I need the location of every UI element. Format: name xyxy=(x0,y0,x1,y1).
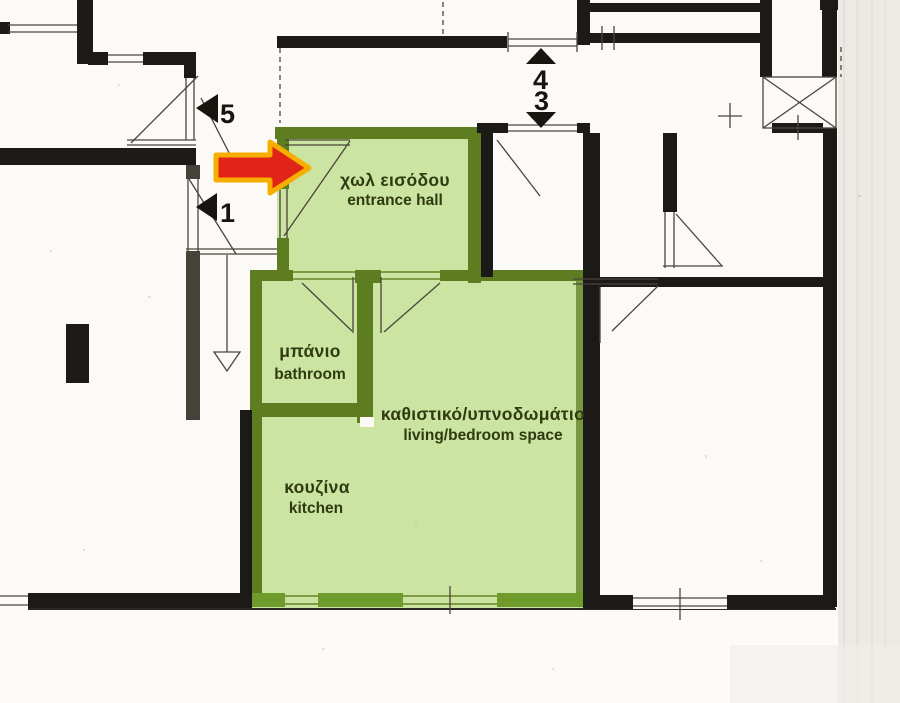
floor-plan-image: χωλ εισόδου entrance hall μπάνιο bathroo… xyxy=(0,0,900,703)
label-living-bedroom-en: living/bedroom space xyxy=(403,427,563,444)
label-entrance-hall-el: χωλ εισόδου xyxy=(340,170,450,190)
label-living-bedroom-el: καθιστικό/υπνοδωμάτιο xyxy=(381,404,585,424)
unit-number: 3 xyxy=(534,86,549,116)
living-right-wall-highlight xyxy=(576,277,584,595)
label-kitchen-en: kitchen xyxy=(289,500,343,517)
label-bathroom-en: bathroom xyxy=(274,366,345,383)
label-bathroom-el: μπάνιο xyxy=(279,341,340,361)
floor-plan-page: χωλ εισόδου entrance hall μπάνιο bathroo… xyxy=(0,0,900,703)
label-entrance-hall-en: entrance hall xyxy=(347,192,443,209)
label-kitchen-el: κουζίνα xyxy=(284,477,350,498)
unit-number: 1 xyxy=(220,198,235,228)
unit-number: 5 xyxy=(220,99,235,129)
